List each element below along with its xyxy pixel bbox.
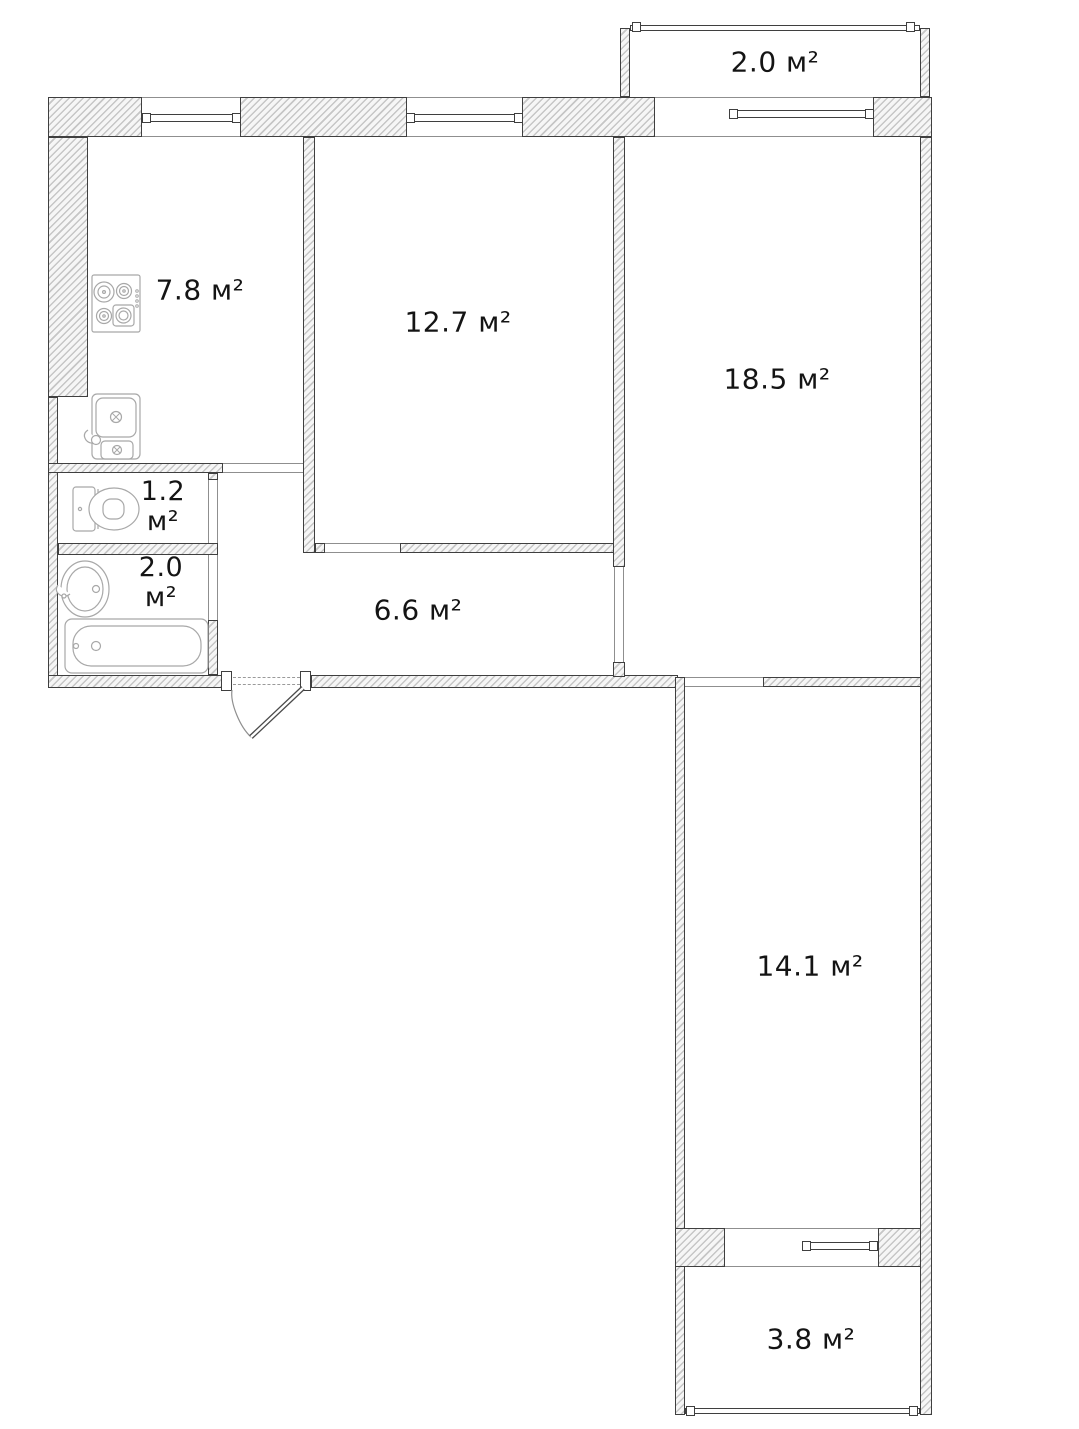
room-area-unit: м² [141,507,185,537]
room-area-unit: м² [478,305,511,338]
floor-plan: 7.8 м² 12.7 м² 18.5 м² 2.0 м² 1.2м² 2.0м… [0,0,1079,1429]
room-label-balcony-top: 2.0 м² [731,46,820,77]
kitchen-sink-icon [84,394,140,459]
room-area-value: 3.8 [767,1322,813,1355]
room-area-value: 2.0 [139,553,183,583]
room-label-12-7: 12.7 м² [404,306,511,337]
bathroom-sink-icon [56,561,109,617]
room-area-value: 12.7 [404,305,468,338]
room-area-unit: м² [830,949,863,982]
stove-icon [92,275,140,332]
room-label-18-5: 18.5 м² [723,363,830,394]
entrance-door-icon [232,688,303,737]
bathtub-icon [65,619,208,673]
room-label-hallway: 6.6 м² [374,594,463,625]
room-label-14-1: 14.1 м² [756,950,863,981]
room-area-value: 1.2 [141,477,185,507]
room-area-unit: м² [429,593,462,626]
room-label-bathroom: 2.0м² [139,553,183,613]
room-area-value: 14.1 [756,949,820,982]
room-area-unit: м² [797,362,830,395]
room-area-unit: м² [822,1322,855,1355]
room-area-value: 7.8 [156,273,202,306]
room-label-balcony-bottom: 3.8 м² [767,1323,856,1354]
fixtures-layer [0,0,1079,1429]
room-label-toilet: 1.2м² [141,477,185,537]
room-area-unit: м² [211,273,244,306]
toilet-icon [73,487,139,531]
room-area-value: 2.0 [731,45,777,78]
room-area-unit: м² [786,45,819,78]
room-area-value: 18.5 [723,362,787,395]
room-area-value: 6.6 [374,593,420,626]
room-label-kitchen: 7.8 м² [156,274,245,305]
room-area-unit: м² [139,583,183,613]
